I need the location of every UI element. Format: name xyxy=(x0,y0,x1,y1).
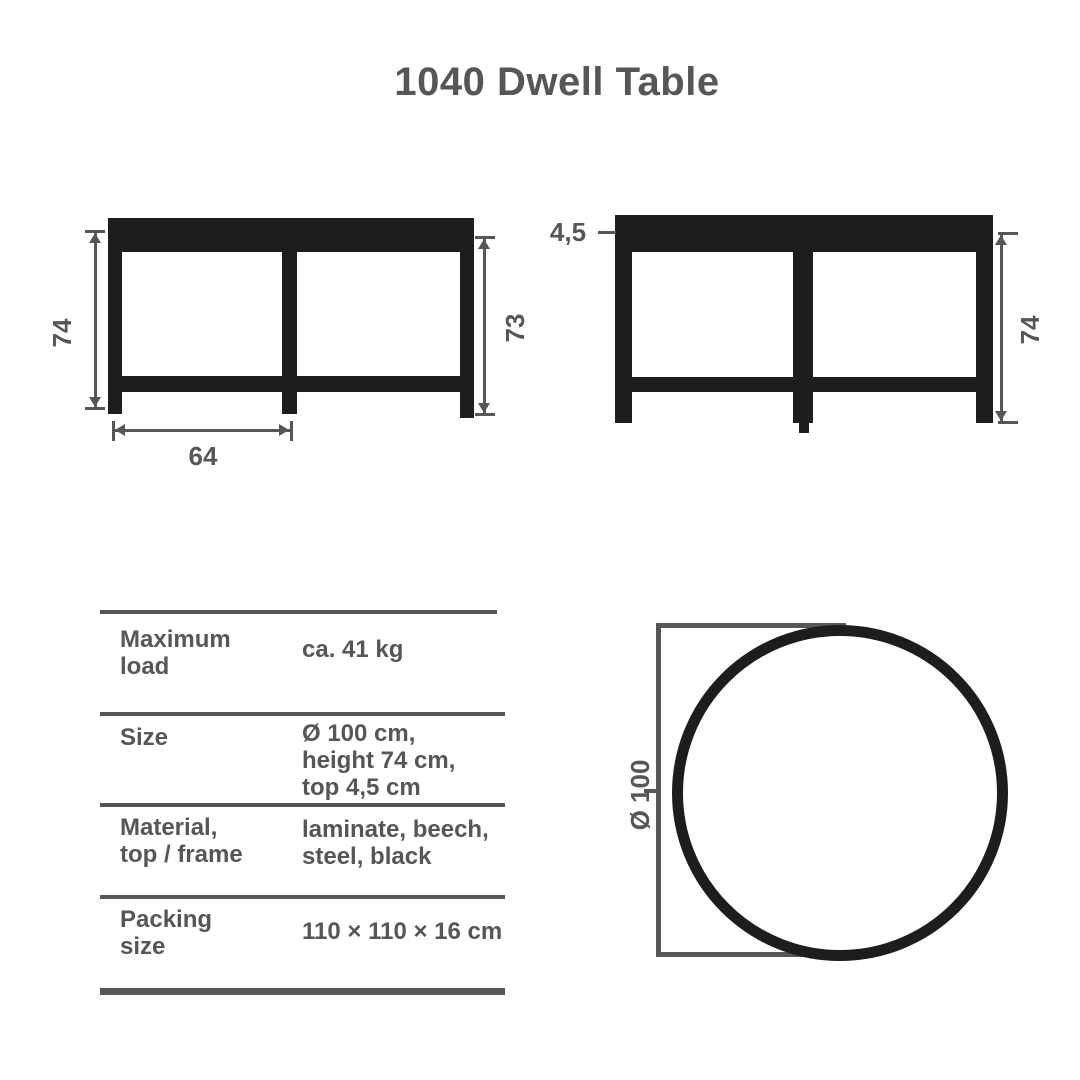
spec-row-3-label-line-2: top / frame xyxy=(120,841,243,868)
front-dim-label-height-left: 74 xyxy=(48,293,76,373)
side-leg-left xyxy=(615,252,632,423)
tabletop-circle xyxy=(672,625,1008,961)
spec-row-2-label-line-1: Size xyxy=(120,724,168,751)
spec-row-4-value-line-1: 110 × 110 × 16 cm xyxy=(302,918,502,945)
spec-row-4-label-line-1: Packing xyxy=(120,906,212,933)
spec-rule-5 xyxy=(100,988,505,995)
front-dim-line-height-right xyxy=(483,238,486,416)
side-tabletop-bar xyxy=(615,215,993,252)
spec-rule-1 xyxy=(100,610,497,614)
front-dim-arrow-down-left xyxy=(89,397,101,407)
front-dim-arrow-up-left xyxy=(89,233,101,243)
spec-row-2-value: Ø 100 cm, height 74 cm, top 4,5 cm xyxy=(302,720,455,801)
side-leg-right xyxy=(976,252,993,423)
side-stretcher-bar xyxy=(615,377,993,392)
spec-row-1-value: ca. 41 kg xyxy=(302,636,403,663)
front-dim-label-height-right: 73 xyxy=(501,288,529,368)
front-stretcher-bar xyxy=(108,376,474,392)
side-leg-middle-foot xyxy=(799,423,809,433)
spec-row-2-value-line-3: top 4,5 cm xyxy=(302,774,455,801)
front-dim-arrow-down-right xyxy=(478,403,490,413)
spec-row-2-label: Size xyxy=(120,724,168,751)
spec-row-1-label-line-2: load xyxy=(120,653,231,680)
spec-rule-2 xyxy=(100,712,505,716)
page-title: 1040 Dwell Table xyxy=(0,60,1080,105)
front-dim-tick-span-right xyxy=(290,421,293,441)
spec-row-2-value-line-1: Ø 100 cm, xyxy=(302,720,455,747)
spec-rule-3 xyxy=(100,803,505,807)
front-tabletop-bar xyxy=(108,218,474,252)
spec-row-3-value-line-2: steel, black xyxy=(302,843,489,870)
dimension-drawing-sheet: 1040 Dwell Table 74 73 64 xyxy=(0,0,1080,1080)
side-dim-label-thickness: 4,5 xyxy=(528,218,608,246)
front-dim-arrow-up-right xyxy=(478,239,490,249)
spec-row-1-label: Maximum load xyxy=(120,626,231,680)
spec-row-4-label-line-2: size xyxy=(120,933,212,960)
front-dim-line-height-left xyxy=(94,232,97,410)
spec-row-4-label: Packing size xyxy=(120,906,212,960)
front-leg-right xyxy=(460,252,474,418)
spec-row-3-value: laminate, beech, steel, black xyxy=(302,816,489,870)
spec-row-3-label: Material, top / frame xyxy=(120,814,243,868)
side-dim-arrow-up xyxy=(995,235,1007,245)
spec-row-4-value: 110 × 110 × 16 cm xyxy=(302,918,502,945)
side-dim-tick-bottom xyxy=(998,421,1018,424)
side-dim-arrow-down xyxy=(995,411,1007,421)
side-dim-label-height: 74 xyxy=(1016,290,1044,370)
spec-row-3-value-line-1: laminate, beech, xyxy=(302,816,489,843)
side-dim-line-height xyxy=(1000,234,1003,424)
front-dim-arrow-span-right xyxy=(279,424,289,436)
spec-row-1-label-line-1: Maximum xyxy=(120,626,231,653)
front-dim-label-leg-span: 64 xyxy=(163,442,243,470)
spec-row-1-value-line-1: ca. 41 kg xyxy=(302,636,403,663)
front-dim-tick-bottom-right xyxy=(475,413,495,416)
spec-row-3-label-line-1: Material, xyxy=(120,814,243,841)
spec-rule-4 xyxy=(100,895,505,899)
spec-row-2-value-line-2: height 74 cm, xyxy=(302,747,455,774)
side-leg-middle xyxy=(793,252,813,423)
front-dim-line-leg-span xyxy=(113,429,293,432)
front-dim-tick-bottom-left xyxy=(85,407,105,410)
top-view-dim-label-diameter: Ø 100 xyxy=(626,755,654,835)
front-dim-arrow-span-left xyxy=(115,424,125,436)
